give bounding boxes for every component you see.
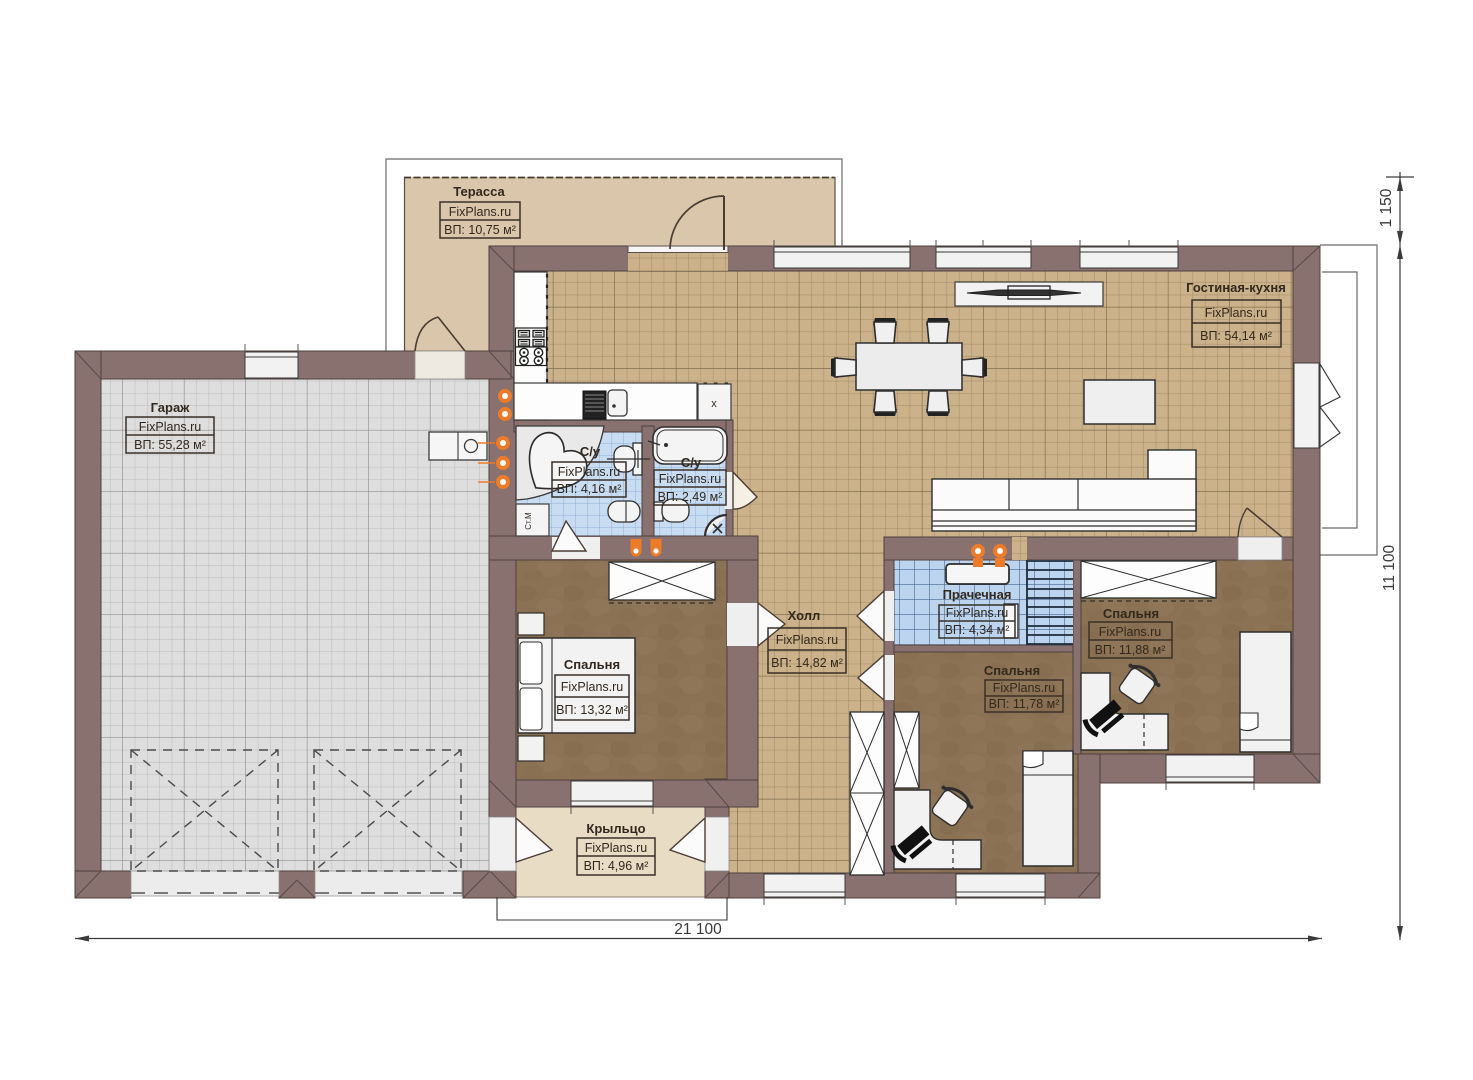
svg-text:FixPlans.ru: FixPlans.ru	[776, 633, 839, 647]
svg-text:ВП: 11,88 м²: ВП: 11,88 м²	[1095, 643, 1166, 657]
svg-text:ВП: 11,78 м²: ВП: 11,78 м²	[989, 697, 1060, 711]
svg-text:FixPlans.ru: FixPlans.ru	[449, 205, 512, 219]
svg-text:Терасса: Терасса	[453, 184, 505, 199]
svg-text:Холл: Холл	[788, 608, 821, 623]
svg-text:ВП: 4,34 м²: ВП: 4,34 м²	[945, 623, 1010, 637]
svg-text:ВП: 4,16 м²: ВП: 4,16 м²	[557, 482, 622, 496]
svg-text:С/у: С/у	[580, 444, 601, 459]
svg-text:FixPlans.ru: FixPlans.ru	[993, 681, 1056, 695]
svg-text:x: x	[711, 398, 717, 410]
svg-text:FixPlans.ru: FixPlans.ru	[558, 465, 621, 479]
svg-text:ВП: 10,75 м²: ВП: 10,75 м²	[444, 223, 516, 237]
svg-text:ВП: 55,28 м²: ВП: 55,28 м²	[134, 438, 206, 452]
svg-text:Прачечная: Прачечная	[943, 587, 1012, 602]
svg-text:Ст.М: Ст.М	[524, 512, 533, 530]
svg-text:FixPlans.ru: FixPlans.ru	[1205, 306, 1268, 320]
svg-text:11 100: 11 100	[1381, 544, 1398, 591]
svg-text:Спальня: Спальня	[984, 663, 1040, 678]
svg-text:Гостиная-кухня: Гостиная-кухня	[1186, 280, 1286, 295]
svg-text:FixPlans.ru: FixPlans.ru	[659, 472, 722, 486]
svg-text:ВП: 13,32 м²: ВП: 13,32 м²	[556, 703, 628, 717]
svg-text:FixPlans.ru: FixPlans.ru	[585, 841, 648, 855]
svg-text:FixPlans.ru: FixPlans.ru	[946, 606, 1009, 620]
svg-text:Спальня: Спальня	[1103, 606, 1159, 621]
svg-text:Спальня: Спальня	[564, 657, 620, 672]
svg-text:Гараж: Гараж	[151, 400, 191, 415]
svg-text:ВП: 14,82 м²: ВП: 14,82 м²	[771, 656, 843, 670]
svg-text:FixPlans.ru: FixPlans.ru	[139, 420, 202, 434]
svg-text:FixPlans.ru: FixPlans.ru	[1099, 625, 1162, 639]
svg-text:1 150: 1 150	[1378, 188, 1395, 227]
svg-text:ВП: 4,96 м²: ВП: 4,96 м²	[584, 859, 649, 873]
svg-text:Крыльцо: Крыльцо	[586, 821, 645, 836]
svg-text:21 100: 21 100	[674, 921, 722, 938]
svg-text:ВП: 2,49 м²: ВП: 2,49 м²	[658, 490, 723, 504]
svg-text:ВП: 54,14 м²: ВП: 54,14 м²	[1200, 329, 1272, 343]
svg-text:FixPlans.ru: FixPlans.ru	[561, 680, 624, 694]
svg-text:С/у: С/у	[681, 455, 702, 470]
